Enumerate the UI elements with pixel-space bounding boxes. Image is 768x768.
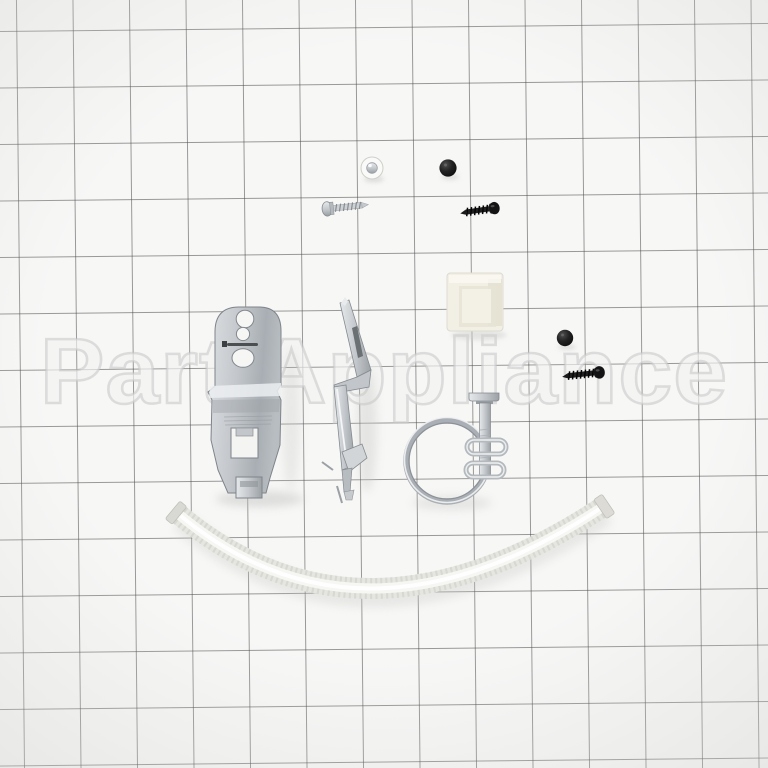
mounting-bracket-galvanized [208,307,281,498]
plastic-spacer-white [447,273,503,331]
wire-hose-clamp-with-screw [405,393,507,503]
self-tapping-screw-black-2 [561,366,605,383]
self-tapping-screw-black [459,201,500,219]
screw-head-black-top-view [439,159,456,176]
screw-head-black-top-view-2 [557,330,573,346]
parts-kit-photo: Part Appliance [0,0,768,768]
corrugated-drain-hose-white [165,494,615,588]
pan-head-screw-silver-top-view [361,157,383,179]
parts-layer [0,0,768,768]
self-tapping-screw-silver [321,197,369,216]
